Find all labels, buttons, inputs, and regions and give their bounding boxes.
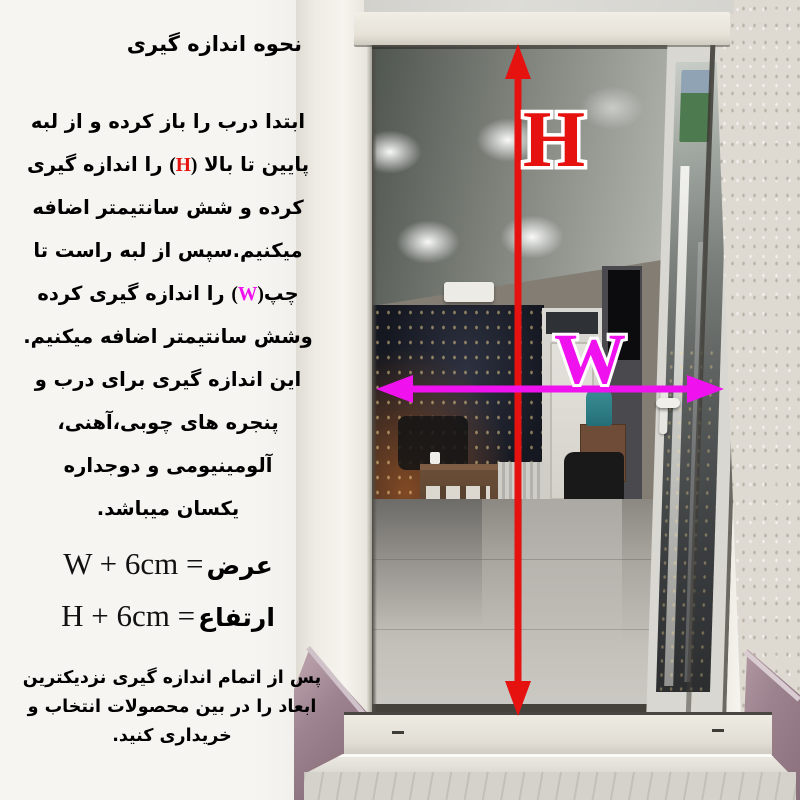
door-handle [656, 398, 680, 408]
purchase-note: پس از اتمام اندازه گیری نزدیکترین ابعاد … [0, 664, 344, 751]
ceiling-light [396, 220, 460, 264]
instruction-line: وشش سانتیمتر اضافه میکنیم. [0, 315, 336, 358]
height-formula-label: ارتفاع [198, 603, 275, 632]
line-text: را اندازه گیری کرده [37, 282, 231, 305]
instruction-line: ابتدا درب را باز کرده و از لبه [0, 100, 336, 143]
floor-reflection [522, 499, 622, 714]
note-line: ابعاد را در بین محصولات انتخاب و [0, 693, 344, 722]
ceiling-light [476, 118, 540, 162]
mug [430, 452, 440, 464]
height-symbol-inline: H [176, 155, 191, 176]
water-dispenser-bottle [586, 388, 612, 426]
door-frame-top [354, 12, 730, 45]
height-formula-expression: H + 6cm = [61, 598, 195, 634]
instructions-column: نحوه اندازه گیری ابتدا درب را باز کرده و… [0, 0, 344, 800]
glass-highlight [664, 166, 689, 686]
instruction-line: یکسان میباشد. [0, 487, 336, 530]
door-sill [344, 712, 772, 758]
marble-step-top [304, 754, 790, 774]
height-symbol-group: (H) [169, 155, 197, 176]
marble-step-front [304, 772, 796, 800]
line-text: پایین تا بالا [197, 153, 309, 176]
frame-edge [372, 44, 377, 714]
ceiling-light [500, 215, 564, 259]
wall-tv [608, 270, 640, 360]
instruction-line: این اندازه گیری برای درب و [0, 358, 336, 401]
measurement-infographic: H W نحوه اندازه گیری ابتدا درب را باز کر… [0, 0, 800, 800]
width-symbol-group: (W) [231, 284, 264, 305]
instruction-line: چپ(W) را اندازه گیری کرده [0, 272, 336, 315]
ceiling-light [372, 130, 422, 174]
floor-dark-reflection [372, 499, 482, 714]
instruction-line: پنجره های چوبی،آهنی، [0, 401, 336, 444]
interior-door-window [546, 312, 598, 334]
page-title: نحوه اندازه گیری [127, 32, 302, 56]
ceiling-light [580, 86, 644, 130]
instructions-paragraph: ابتدا درب را باز کرده و از لبه پایین تا … [0, 100, 336, 530]
interior-ceiling [372, 44, 702, 306]
line-text: چپ [264, 282, 299, 305]
width-formula: W + 6cm = عرض [0, 546, 336, 582]
width-symbol-inline: W [238, 284, 258, 305]
instruction-line: کرده و شش سانتیمتر اضافه [0, 186, 336, 229]
line-text: را اندازه گیری [27, 153, 169, 176]
height-formula: H + 6cm = ارتفاع [0, 598, 336, 634]
note-line: پس از اتمام اندازه گیری نزدیکترین [0, 664, 344, 693]
width-formula-label: عرض [207, 551, 273, 580]
note-line: خریداری کنید. [0, 722, 344, 751]
air-conditioner [444, 282, 494, 302]
door-handle-plate [659, 388, 668, 434]
instruction-line: پایین تا بالا (H) را اندازه گیری [0, 143, 336, 186]
instruction-line: آلومینیومی و دوجداره [0, 444, 336, 487]
width-formula-expression: W + 6cm = [63, 546, 203, 582]
instruction-line: میکنیم.سپس از لبه راست تا [0, 229, 336, 272]
